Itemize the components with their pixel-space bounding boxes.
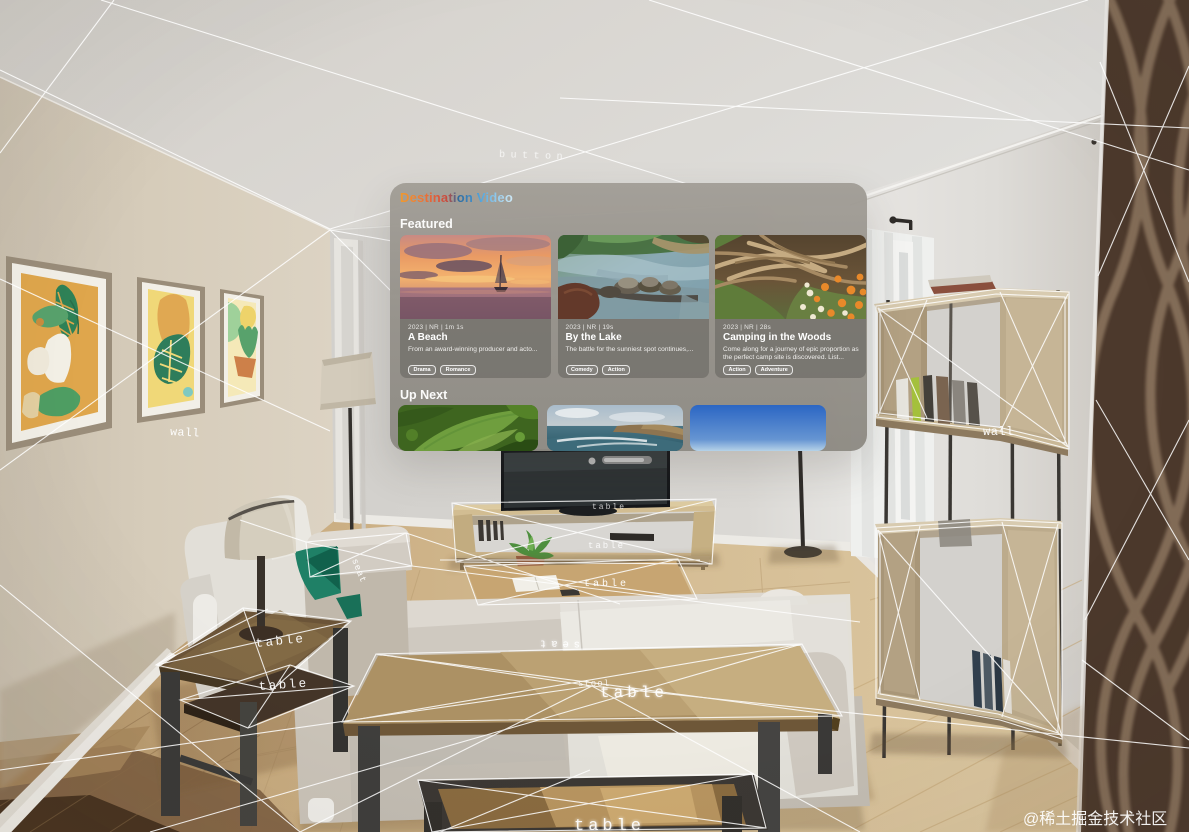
svg-text:wall: wall xyxy=(983,425,1014,439)
svg-text:table: table xyxy=(584,578,629,590)
svg-text:table: table xyxy=(600,684,668,702)
svg-text:table: table xyxy=(592,503,626,512)
svg-text:@稀土掘金技术社区: @稀土掘金技术社区 xyxy=(1023,810,1167,828)
svg-text:seat: seat xyxy=(535,636,581,650)
svg-text:wall: wall xyxy=(170,426,200,441)
svg-text:table: table xyxy=(574,817,645,832)
svg-text:table: table xyxy=(588,541,625,551)
svg-text:button: button xyxy=(499,149,568,163)
